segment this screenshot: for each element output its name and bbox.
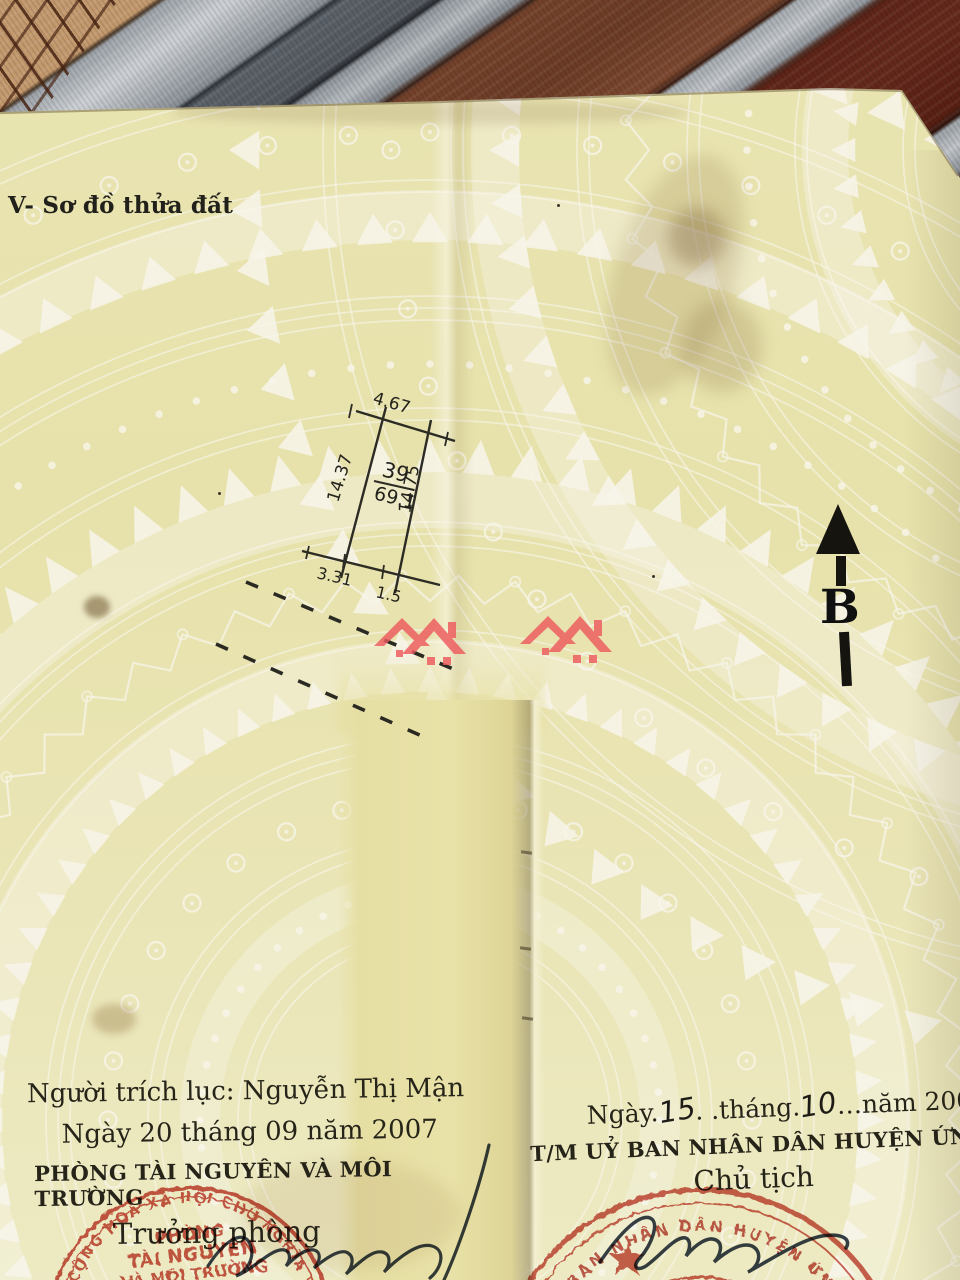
department-stamp: CỘNG HOÀ XÃ HỘI CHỦ NGHĨA VIỆT NAM PHÒNG… bbox=[0, 0, 332, 1280]
north-label: B bbox=[820, 580, 860, 635]
house-watermark-icon bbox=[374, 618, 466, 665]
photographed-document: V- Sơ đồ thửa đất Người trích lục: Nguyễ… bbox=[0, 0, 960, 1280]
dashed-boundary-lines bbox=[216, 582, 458, 737]
document-page: V- Sơ đồ thửa đất Người trích lục: Nguyễ… bbox=[0, 0, 960, 1280]
dashed-line bbox=[246, 582, 458, 671]
bottom-segment-length: 1.5 bbox=[374, 582, 403, 606]
left-edge-length: 14.37 bbox=[324, 452, 357, 504]
stamp-rim-text: UỶ BAN NHÂN DÂN HUYỆN ỨNG HOÀ bbox=[0, 0, 862, 1280]
svg-text:UỶ BAN NHÂN DÂN HUYỆN ỨNG HOÀ: UỶ BAN NHÂN DÂN HUYỆN ỨNG HOÀ bbox=[0, 0, 862, 1280]
north-arrow-icon: B bbox=[816, 504, 860, 686]
house-watermark-icon bbox=[520, 616, 612, 663]
top-edge-length: 4.67 bbox=[371, 389, 413, 419]
stamp-rim-text: CỘNG HOÀ XÃ HỘI CHỦ NGHĨA VIỆT NAM bbox=[0, 0, 316, 1280]
dashed-line bbox=[216, 644, 424, 737]
bottom-left-segment-length: 3.31 bbox=[315, 563, 354, 590]
parcel-diagram: 4.67 14.37 14.75 39 69.1 3.31 1.5 bbox=[302, 389, 455, 607]
svg-text:CỘNG HOÀ XÃ HỘI CHỦ NGHĨA VIỆT: CỘNG HOÀ XÃ HỘI CHỦ NGHĨA VIỆT NAM bbox=[0, 0, 316, 1280]
